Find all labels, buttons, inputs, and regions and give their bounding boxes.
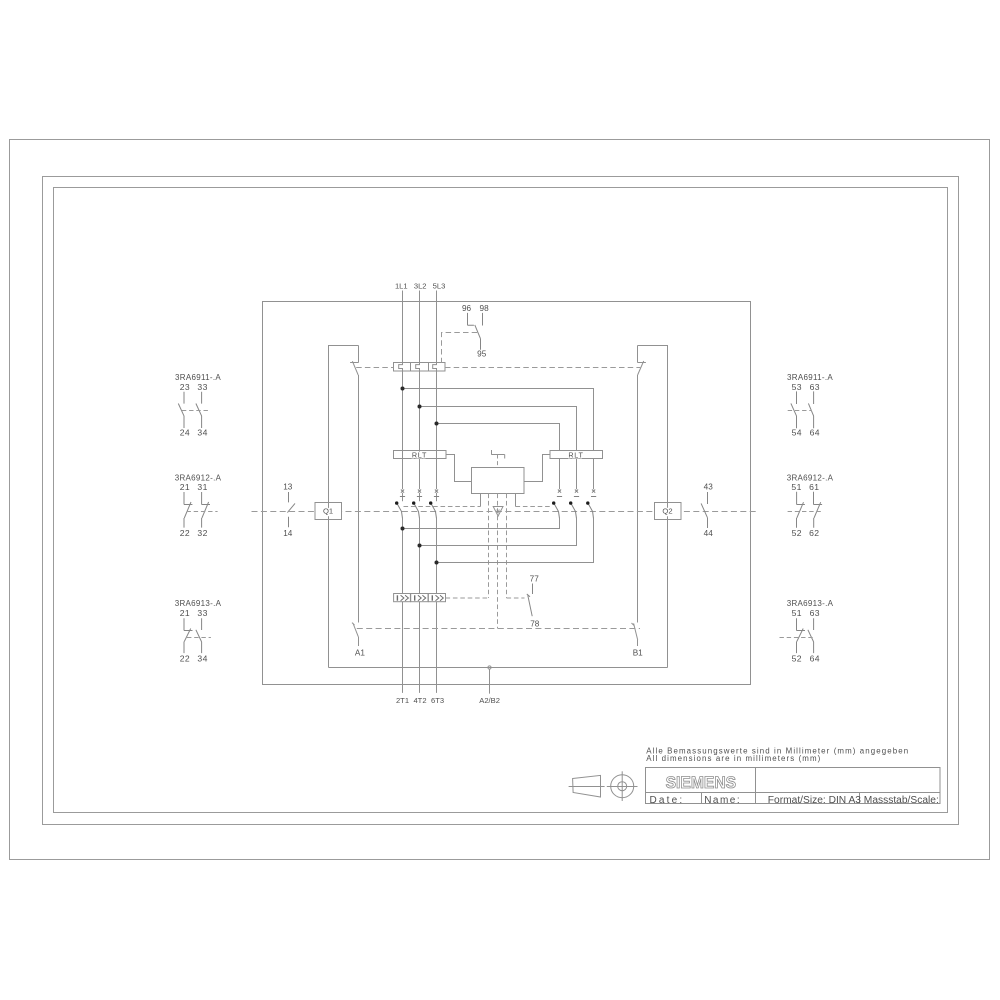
svg-text:1L1: 1L1 [395, 281, 408, 290]
svg-text:52: 52 [792, 654, 802, 664]
svg-text:96: 96 [462, 304, 472, 313]
svg-text:6T3: 6T3 [431, 696, 444, 705]
svg-text:22: 22 [180, 528, 190, 538]
svg-text:61: 61 [809, 482, 819, 492]
svg-text:RLT: RLT [412, 450, 427, 459]
svg-text:64: 64 [810, 428, 820, 438]
svg-text:3RA6913-.A: 3RA6913-.A [175, 599, 222, 608]
svg-text:63: 63 [810, 382, 820, 392]
svg-text:RLT: RLT [568, 450, 583, 459]
svg-text:33: 33 [197, 382, 207, 392]
svg-text:SIEMENS: SIEMENS [666, 773, 737, 792]
svg-text:Name:: Name: [704, 795, 741, 806]
svg-text:5L3: 5L3 [433, 281, 446, 290]
svg-text:Q1: Q1 [323, 507, 333, 516]
svg-text:3L2: 3L2 [414, 281, 427, 290]
svg-text:Q2: Q2 [662, 507, 672, 516]
svg-text:51: 51 [792, 608, 802, 618]
svg-text:64: 64 [810, 654, 820, 664]
svg-text:78: 78 [530, 620, 540, 629]
svg-text:A2/B2: A2/B2 [479, 696, 500, 705]
svg-text:A1: A1 [355, 648, 365, 657]
svg-text:Format/Size: DIN A3 Massstab/S: Format/Size: DIN A3 Massstab/Scale: [768, 795, 939, 806]
svg-text:23: 23 [180, 382, 190, 392]
svg-text:51: 51 [791, 482, 801, 492]
svg-text:All dimensions are in millimet: All dimensions are in millimeters (mm) [646, 754, 821, 763]
svg-text:43: 43 [704, 483, 714, 492]
svg-text:53: 53 [792, 382, 802, 392]
svg-text:3RA6913-.A: 3RA6913-.A [787, 599, 834, 608]
svg-text:4T2: 4T2 [413, 696, 426, 705]
svg-text:95: 95 [477, 350, 487, 359]
svg-text:2T1: 2T1 [396, 696, 409, 705]
svg-text:21: 21 [180, 608, 190, 618]
svg-text:Date:: Date: [650, 795, 685, 806]
svg-text:33: 33 [197, 608, 207, 618]
svg-text:21: 21 [180, 482, 190, 492]
svg-text:34: 34 [197, 654, 207, 664]
svg-text:32: 32 [197, 528, 207, 538]
svg-text:14: 14 [283, 529, 293, 538]
svg-text:54: 54 [792, 428, 802, 438]
svg-text:44: 44 [704, 529, 714, 538]
svg-text:31: 31 [197, 482, 207, 492]
svg-text:24: 24 [180, 428, 190, 438]
svg-text:63: 63 [810, 608, 820, 618]
svg-text:13: 13 [283, 483, 293, 492]
svg-text:77: 77 [530, 575, 540, 584]
svg-text:34: 34 [197, 428, 207, 438]
svg-text:B1: B1 [633, 648, 643, 657]
svg-text:52: 52 [792, 528, 802, 538]
svg-text:98: 98 [480, 304, 490, 313]
svg-text:22: 22 [180, 654, 190, 664]
svg-text:62: 62 [809, 528, 819, 538]
